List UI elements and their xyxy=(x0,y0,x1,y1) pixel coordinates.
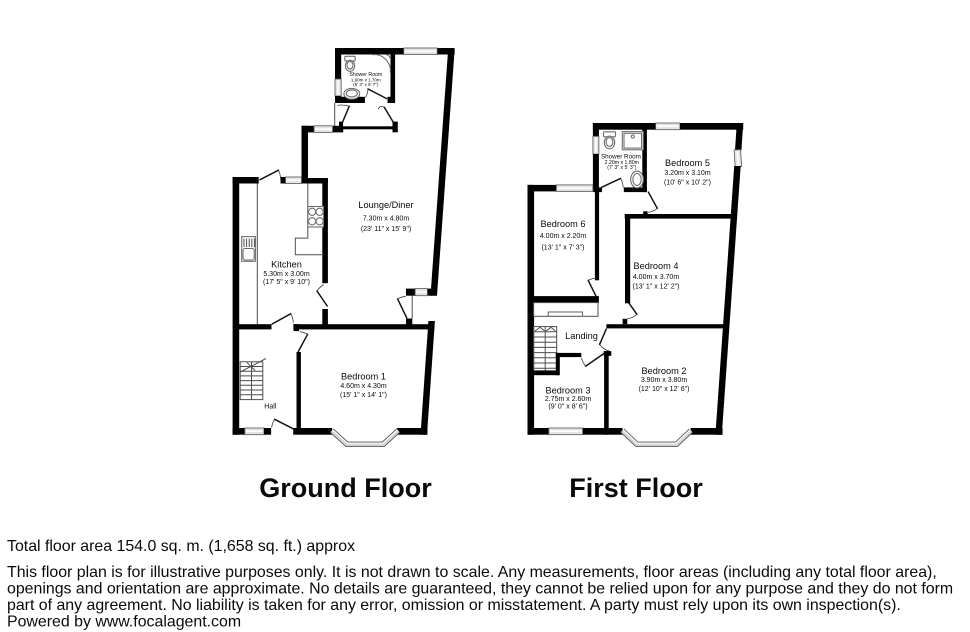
svg-text:Powered by www.focalagent.com: Powered by www.focalagent.com xyxy=(7,614,241,631)
svg-text:part of any agreement. No liab: part of any agreement. No liability is t… xyxy=(7,597,901,614)
svg-text:(6' 3" x 5' 7"): (6' 3" x 5' 7") xyxy=(353,82,379,87)
svg-text:(9' 0" x 8' 6"): (9' 0" x 8' 6") xyxy=(548,404,587,411)
svg-text:(17' 5" x 9' 10"): (17' 5" x 9' 10") xyxy=(263,279,310,286)
svg-text:2.75m x 2.60m: 2.75m x 2.60m xyxy=(545,396,591,403)
svg-text:(23' 11" x 15' 9"): (23' 11" x 15' 9") xyxy=(361,226,411,233)
svg-text:Landing: Landing xyxy=(565,331,598,341)
svg-text:(7' 3" x 5' 3"): (7' 3" x 5' 3") xyxy=(607,165,636,171)
svg-text:Bedroom 2: Bedroom 2 xyxy=(642,366,687,376)
svg-text:3.90m x 3.80m: 3.90m x 3.80m xyxy=(641,377,687,384)
svg-text:Ground Floor: Ground Floor xyxy=(259,473,432,503)
svg-text:Bedroom 3: Bedroom 3 xyxy=(546,386,591,396)
svg-text:Bedroom 4: Bedroom 4 xyxy=(634,261,679,271)
svg-text:Kitchen: Kitchen xyxy=(271,260,302,270)
svg-text:3.20m x 3.10m: 3.20m x 3.10m xyxy=(664,170,710,177)
svg-text:7.30m x 4.80m: 7.30m x 4.80m xyxy=(363,216,409,223)
svg-text:Lounge/Diner: Lounge/Diner xyxy=(358,200,413,210)
svg-text:Total floor area 154.0 sq. m.: Total floor area 154.0 sq. m. (1,658 sq.… xyxy=(7,538,355,555)
svg-text:4.00m x 2.20m: 4.00m x 2.20m xyxy=(540,233,586,240)
svg-text:(13' 1" x 7' 3"): (13' 1" x 7' 3") xyxy=(541,244,584,251)
svg-text:This floor plan is for illustr: This floor plan is for illustrative purp… xyxy=(7,564,937,581)
svg-text:Hall: Hall xyxy=(264,403,277,410)
svg-text:Bedroom 5: Bedroom 5 xyxy=(665,158,710,168)
svg-text:(15' 1" x 14' 1"): (15' 1" x 14' 1") xyxy=(340,392,387,399)
svg-text:(12' 10" x 12' 6"): (12' 10" x 12' 6") xyxy=(639,386,690,393)
svg-text:4.00m x 3.70m: 4.00m x 3.70m xyxy=(633,274,679,281)
svg-text:First Floor: First Floor xyxy=(569,473,703,503)
svg-text:openings and orientation are a: openings and orientation are approximate… xyxy=(7,581,953,598)
svg-text:5.30m x 3.00m: 5.30m x 3.00m xyxy=(263,271,309,278)
svg-text:Bedroom 6: Bedroom 6 xyxy=(541,219,586,229)
svg-text:Bedroom 1: Bedroom 1 xyxy=(341,372,386,382)
svg-text:(13' 1" x 12' 2"): (13' 1" x 12' 2") xyxy=(633,283,680,290)
svg-text:4.60m x 4.30m: 4.60m x 4.30m xyxy=(340,383,386,390)
svg-text:(10' 6" x 10' 2"): (10' 6" x 10' 2") xyxy=(664,179,711,186)
